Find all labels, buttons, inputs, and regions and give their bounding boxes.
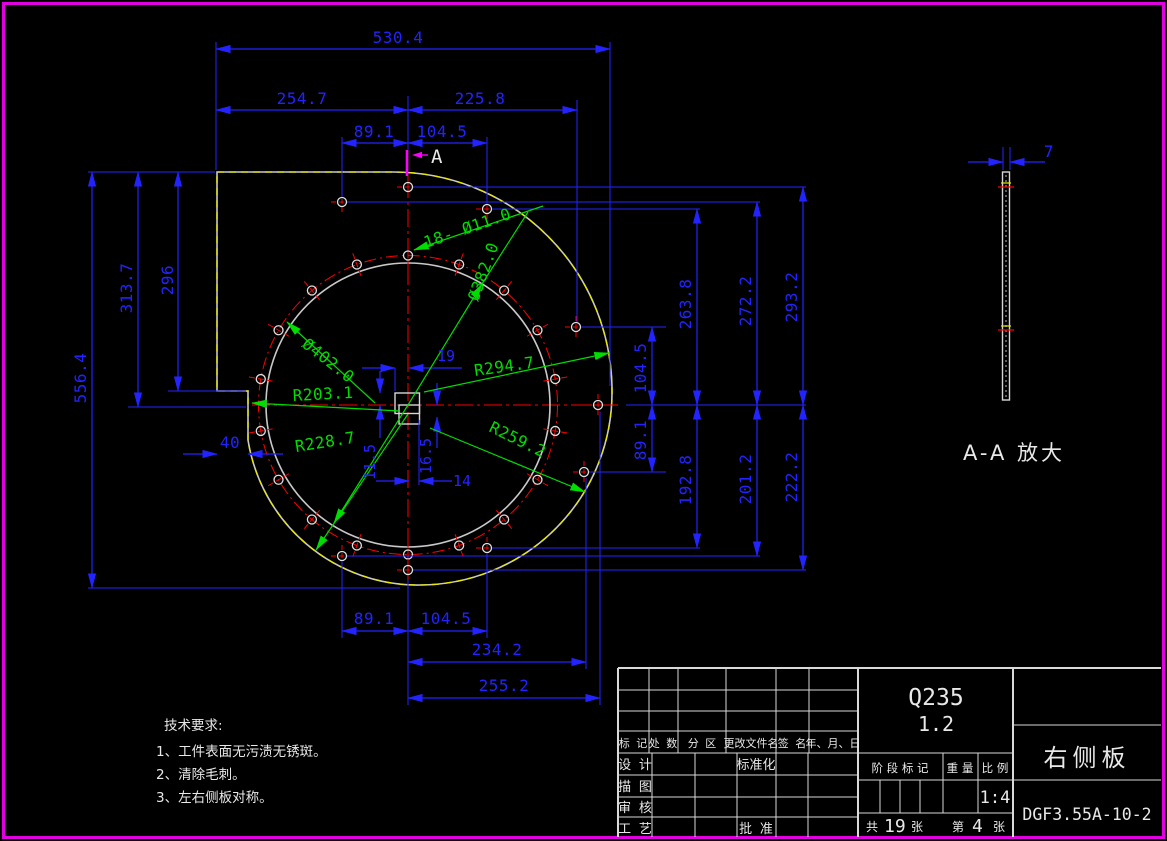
dim-top-hole-right: 104.5: [417, 122, 468, 141]
rev-header-count: 处 数: [649, 737, 678, 750]
weight-header: 重 量: [947, 761, 974, 775]
dim-width-left: 254.7: [277, 89, 328, 108]
dim-center-14: 14: [453, 472, 471, 490]
dim-width-right: 225.8: [455, 89, 506, 108]
rev-header-zone: 分 区: [688, 737, 717, 750]
tech-title: 技术要求:: [164, 718, 223, 734]
dim-right-104: 104.5: [631, 343, 650, 394]
row-check: 审 核: [618, 801, 652, 816]
row-process: 工 艺: [618, 822, 652, 837]
sheet-total-suffix: 张: [911, 820, 923, 834]
row-approve: 批 准: [739, 822, 773, 837]
material-value: Q235: [908, 685, 963, 711]
tech-item-1: 1、工件表面无污渍无锈斑。: [156, 744, 327, 760]
dim-center-11-5: 11.5: [361, 444, 379, 480]
dim-right-192: 192.8: [676, 455, 695, 506]
dim-bottom-hole-right: 104.5: [421, 609, 472, 628]
label-r203: R203.1: [292, 383, 354, 405]
sheet-page: 4: [972, 816, 983, 837]
dim-bottom-hole-left: 89.1: [354, 609, 395, 628]
cad-drawing-canvas: A 530.4 254.7 225.8 89.1 104.5 556.4 313…: [0, 0, 1167, 841]
dim-right-272: 272.2: [736, 276, 755, 327]
sheet-page-prefix: 第: [952, 820, 964, 834]
dim-right-89: 89.1: [631, 420, 650, 461]
scale-value: 1:4: [980, 788, 1011, 808]
dim-right-293: 293.2: [782, 272, 801, 323]
revision-headers: 标 记 处 数 分 区 更改文件名 签 名 年、月、日: [619, 736, 861, 750]
rev-header-date: 年、月、日: [806, 736, 861, 750]
thickness-value: 1.2: [918, 712, 954, 736]
dim-center-19: 19: [437, 347, 455, 365]
sheet-page-suffix: 张: [993, 820, 1005, 834]
section-letter: A: [431, 146, 443, 168]
dim-detail-thickness: 7: [1044, 142, 1054, 161]
dim-top-hole-left: 89.1: [354, 122, 395, 141]
dim-height-center: 313.7: [117, 263, 136, 314]
dim-step-width: 40: [220, 433, 240, 452]
part-name: 右侧板: [1044, 744, 1131, 772]
dim-right-263: 263.8: [676, 279, 695, 330]
dim-height-step: 296: [158, 265, 177, 295]
dim-center-16-5: 16.5: [417, 438, 435, 474]
sheet-total: 19: [884, 816, 906, 837]
row-trace: 描 图: [618, 780, 652, 795]
dim-right-222: 222.2: [782, 452, 801, 503]
paper-background: [0, 0, 1167, 841]
row-design: 设 计: [618, 758, 652, 773]
tech-item-3: 3、左右侧板对称。: [156, 790, 273, 806]
tech-item-2: 2、清除毛刺。: [156, 767, 246, 783]
dim-bottom-234: 234.2: [472, 640, 523, 659]
scale-header: 比 例: [982, 761, 1009, 775]
dim-width-total: 530.4: [373, 28, 424, 47]
row-standardize: 标准化: [736, 758, 775, 773]
dim-right-201: 201.2: [736, 454, 755, 505]
sheet-total-prefix: 共: [866, 820, 878, 834]
dim-height-total: 556.4: [71, 353, 90, 404]
detail-title: A-A 放大: [963, 441, 1065, 465]
drawing-number: DGF3.55A-10-2: [1022, 805, 1151, 824]
rev-header-mark: 标 记: [619, 736, 648, 750]
rev-header-sign: 签 名: [778, 736, 807, 750]
stage-header: 阶 段 标 记: [872, 761, 929, 775]
dim-bottom-255: 255.2: [479, 676, 530, 695]
rev-header-docname: 更改文件名: [724, 736, 779, 750]
